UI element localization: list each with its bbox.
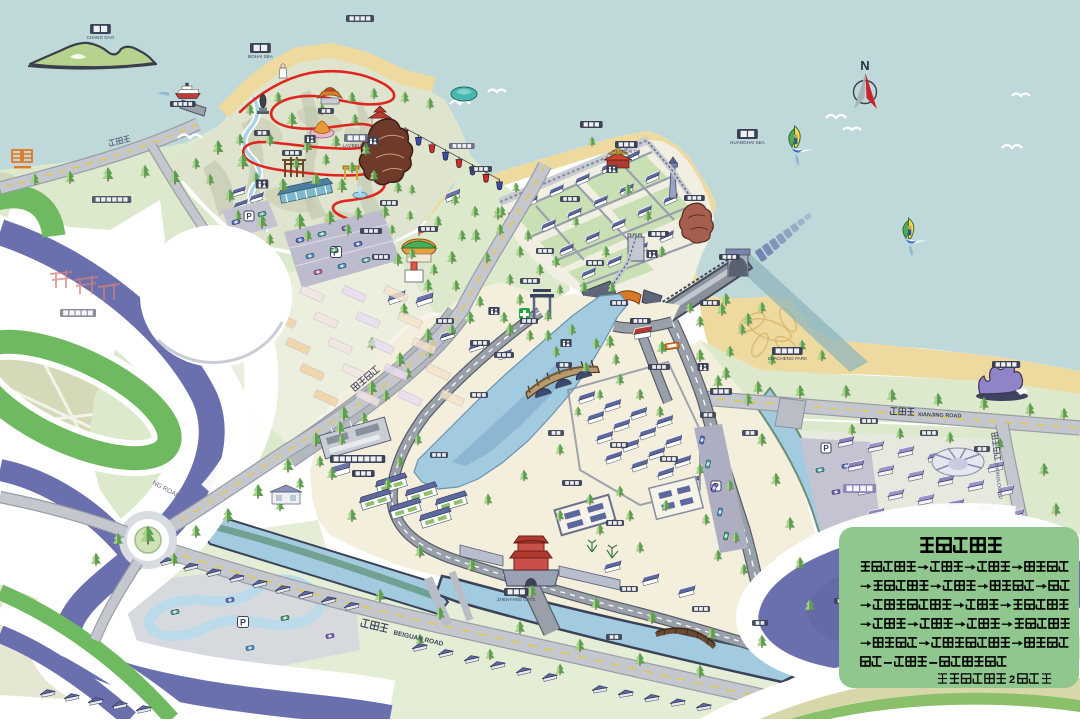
svg-text:ZHENYANG GATE: ZHENYANG GATE xyxy=(497,597,536,602)
svg-text:N: N xyxy=(860,58,869,73)
svg-text:PENGLAI GE: PENGLAI GE xyxy=(612,149,640,154)
svg-text:P: P xyxy=(246,212,252,221)
svg-text:SHACHENG PARK: SHACHENG PARK xyxy=(768,356,808,361)
svg-text:P: P xyxy=(240,618,246,628)
svg-text:P: P xyxy=(823,444,829,453)
svg-text:CHANG DAO: CHANG DAO xyxy=(86,35,114,40)
svg-text:HUANGHAI SEA: HUANGHAI SEA xyxy=(730,140,766,145)
svg-text:LAOBEI HILL: LAOBEI HILL xyxy=(342,143,370,148)
svg-text:BOHAI SEA: BOHAI SEA xyxy=(248,54,274,59)
svg-text:2: 2 xyxy=(1009,674,1015,686)
